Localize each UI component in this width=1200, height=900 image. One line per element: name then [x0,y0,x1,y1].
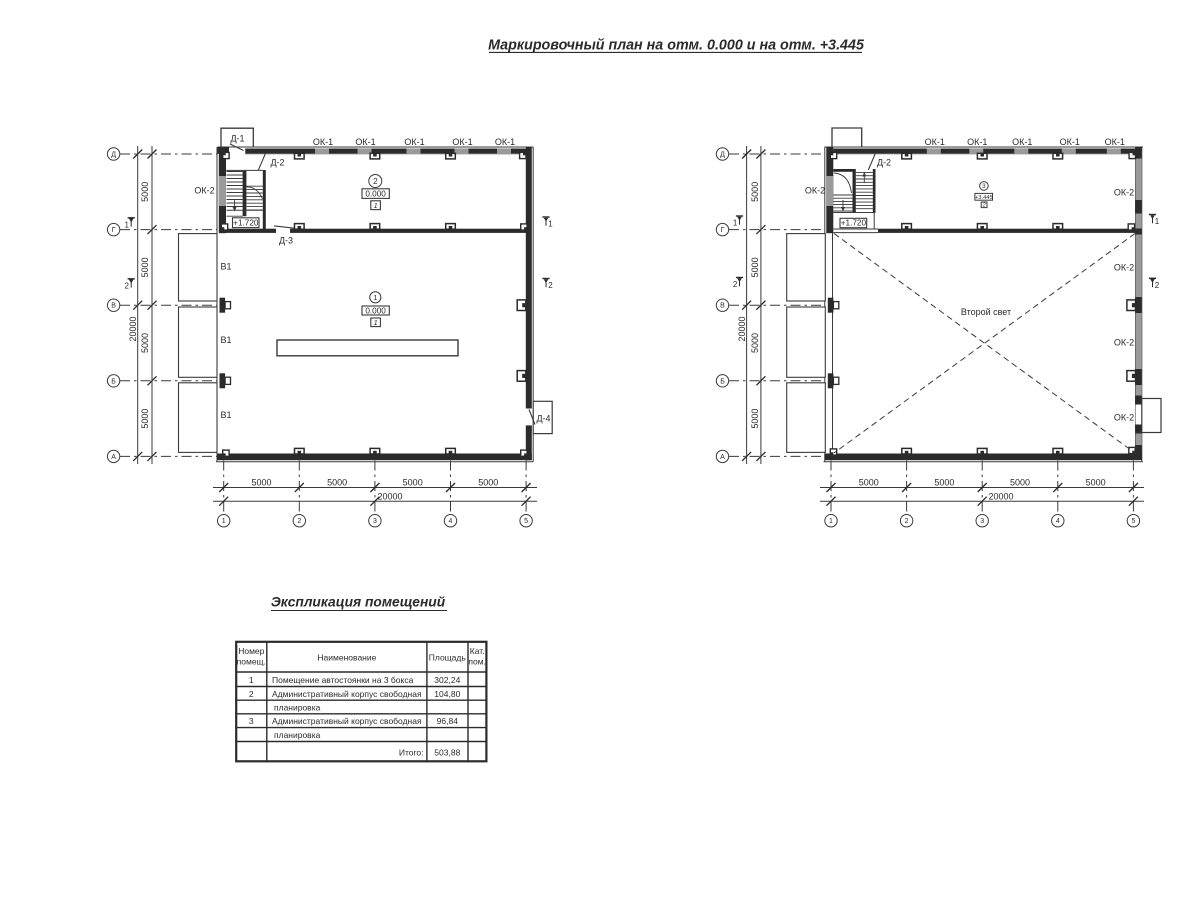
svg-text:Г: Г [721,227,725,234]
svg-text:помещ.: помещ. [237,656,266,666]
svg-text:2: 2 [125,282,130,291]
svg-text:0.000: 0.000 [365,306,386,315]
svg-text:Площадь: Площадь [429,652,467,662]
svg-text:Б: Б [111,378,116,385]
svg-text:5000: 5000 [251,477,271,487]
svg-text:5000: 5000 [934,477,954,487]
svg-text:2: 2 [733,280,738,289]
svg-text:5000: 5000 [140,333,150,353]
svg-text:5000: 5000 [140,257,150,277]
svg-text:1: 1 [373,318,377,327]
svg-text:Д-2: Д-2 [877,158,891,168]
svg-text:+1.720: +1.720 [233,218,259,227]
svg-text:5: 5 [1131,518,1135,525]
svg-text:96,84: 96,84 [437,716,459,726]
svg-text:5000: 5000 [750,409,760,429]
svg-text:4: 4 [449,518,453,525]
svg-text:Г: Г [112,227,116,234]
svg-text:ОК-1: ОК-1 [452,137,472,147]
svg-text:5000: 5000 [1086,477,1106,487]
svg-text:пом.: пом. [468,656,486,666]
svg-text:Второй свет: Второй свет [961,307,1011,317]
svg-text:1: 1 [222,518,226,525]
svg-text:5000: 5000 [750,333,760,353]
svg-text:А: А [720,454,725,461]
svg-text:2: 2 [373,177,378,186]
svg-text:ОК-1: ОК-1 [1060,137,1080,147]
svg-text:ОК-2: ОК-2 [1114,188,1134,198]
svg-text:В1: В1 [221,410,232,420]
svg-text:планировка: планировка [274,730,321,740]
svg-text:Итого:: Итого: [399,747,424,757]
svg-text:1: 1 [548,220,553,229]
svg-text:ОК-1: ОК-1 [313,137,333,147]
svg-text:1: 1 [829,518,833,525]
svg-text:Кат.: Кат. [470,646,485,656]
svg-text:ОК-2: ОК-2 [194,186,214,196]
svg-text:3: 3 [980,518,984,525]
svg-text:3: 3 [249,716,254,726]
svg-text:1: 1 [1155,217,1160,226]
svg-text:ОК-1: ОК-1 [1012,137,1032,147]
svg-text:5000: 5000 [403,477,423,487]
svg-text:104,80: 104,80 [434,689,460,699]
svg-text:Д-3: Д-3 [279,236,293,246]
svg-text:0.000: 0.000 [365,189,386,198]
svg-text:А: А [111,454,116,461]
svg-text:ОК-2: ОК-2 [805,186,825,196]
svg-text:2: 2 [1155,281,1160,290]
svg-text:Д-4: Д-4 [536,413,550,423]
svg-text:1: 1 [373,201,377,210]
svg-text:5000: 5000 [140,182,150,202]
svg-text:20000: 20000 [989,492,1014,502]
svg-text:Д-2: Д-2 [270,158,284,168]
svg-text:В1: В1 [221,335,232,345]
svg-text:Наименование: Наименование [317,652,376,662]
svg-text:1: 1 [125,221,130,230]
svg-text:планировка: планировка [274,702,321,712]
svg-text:2: 2 [297,518,301,525]
svg-text:5000: 5000 [327,477,347,487]
svg-text:20000: 20000 [737,316,747,341]
svg-text:3: 3 [373,518,377,525]
svg-text:Номер: Номер [238,646,264,656]
svg-text:ОК-1: ОК-1 [925,137,945,147]
svg-text:Д: Д [111,152,116,159]
svg-text:Д: Д [720,152,725,159]
svg-text:5000: 5000 [140,409,150,429]
svg-text:2: 2 [905,518,909,525]
svg-text:В1: В1 [221,261,232,271]
svg-text:2: 2 [982,203,986,209]
svg-text:20000: 20000 [378,492,403,502]
svg-text:302,24: 302,24 [434,675,460,685]
svg-text:2: 2 [548,281,553,290]
svg-text:В: В [720,303,725,310]
svg-text:4: 4 [1056,518,1060,525]
svg-text:+3.445: +3.445 [975,195,993,201]
svg-text:5000: 5000 [750,182,760,202]
svg-text:Административный корпус свобод: Административный корпус свободная [272,689,422,699]
svg-text:Административный корпус свобод: Административный корпус свободная [272,716,422,726]
svg-text:ОК-2: ОК-2 [1114,263,1134,273]
svg-text:В: В [111,303,116,310]
svg-text:ОК-1: ОК-1 [1105,137,1125,147]
svg-text:ОК-1: ОК-1 [495,137,515,147]
svg-text:Экспликация помещений: Экспликация помещений [271,595,446,610]
svg-text:5000: 5000 [859,477,879,487]
svg-text:Помещение автостоянки на 3 бок: Помещение автостоянки на 3 бокса [272,675,414,685]
svg-text:ОК-1: ОК-1 [404,137,424,147]
svg-text:Маркировочный план на отм. 0.0: Маркировочный план на отм. 0.000 и на от… [488,38,865,54]
svg-text:1: 1 [249,675,254,685]
svg-text:Б: Б [720,378,725,385]
svg-text:5000: 5000 [750,257,760,277]
svg-text:5000: 5000 [478,477,498,487]
svg-text:1: 1 [733,219,738,228]
svg-text:2: 2 [249,689,254,699]
svg-text:ОК-1: ОК-1 [355,137,375,147]
svg-text:ОК-1: ОК-1 [967,137,987,147]
svg-text:+1.720: +1.720 [841,219,867,228]
svg-text:20000: 20000 [128,316,138,341]
svg-text:1: 1 [373,293,377,302]
svg-text:5: 5 [524,518,528,525]
svg-text:5000: 5000 [1010,477,1030,487]
svg-text:503,88: 503,88 [434,747,460,757]
svg-text:Д-1: Д-1 [230,134,244,144]
svg-text:ОК-2: ОК-2 [1114,338,1134,348]
svg-text:ОК-2: ОК-2 [1114,413,1134,423]
